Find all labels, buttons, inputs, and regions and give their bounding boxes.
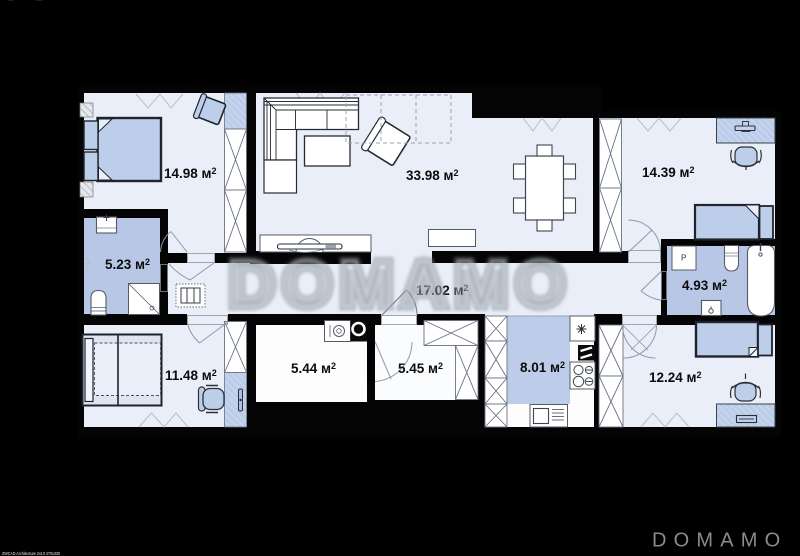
svg-text:11.48 м2: 11.48 м2 xyxy=(165,368,217,383)
svg-text:5.44 м2: 5.44 м2 xyxy=(291,361,336,376)
svg-text:4.93 м2: 4.93 м2 xyxy=(682,278,727,293)
svg-text:33.98 м2: 33.98 м2 xyxy=(406,168,459,183)
svg-text:ZWCAD Architecture 2x10 470x33: ZWCAD Architecture 2x10 470x330 xyxy=(2,551,60,556)
svg-text:DOMAMO: DOMAMO xyxy=(652,530,787,552)
svg-text:P: P xyxy=(681,254,686,263)
svg-text:12.24 м2: 12.24 м2 xyxy=(649,370,702,385)
svg-text:5.23 м2: 5.23 м2 xyxy=(105,257,150,272)
svg-text:14.39 м2: 14.39 м2 xyxy=(642,165,695,180)
svg-text:5.45 м2: 5.45 м2 xyxy=(398,361,443,376)
svg-text:8.01 м2: 8.01 м2 xyxy=(520,360,565,375)
svg-text:14.98 м2: 14.98 м2 xyxy=(164,166,217,181)
